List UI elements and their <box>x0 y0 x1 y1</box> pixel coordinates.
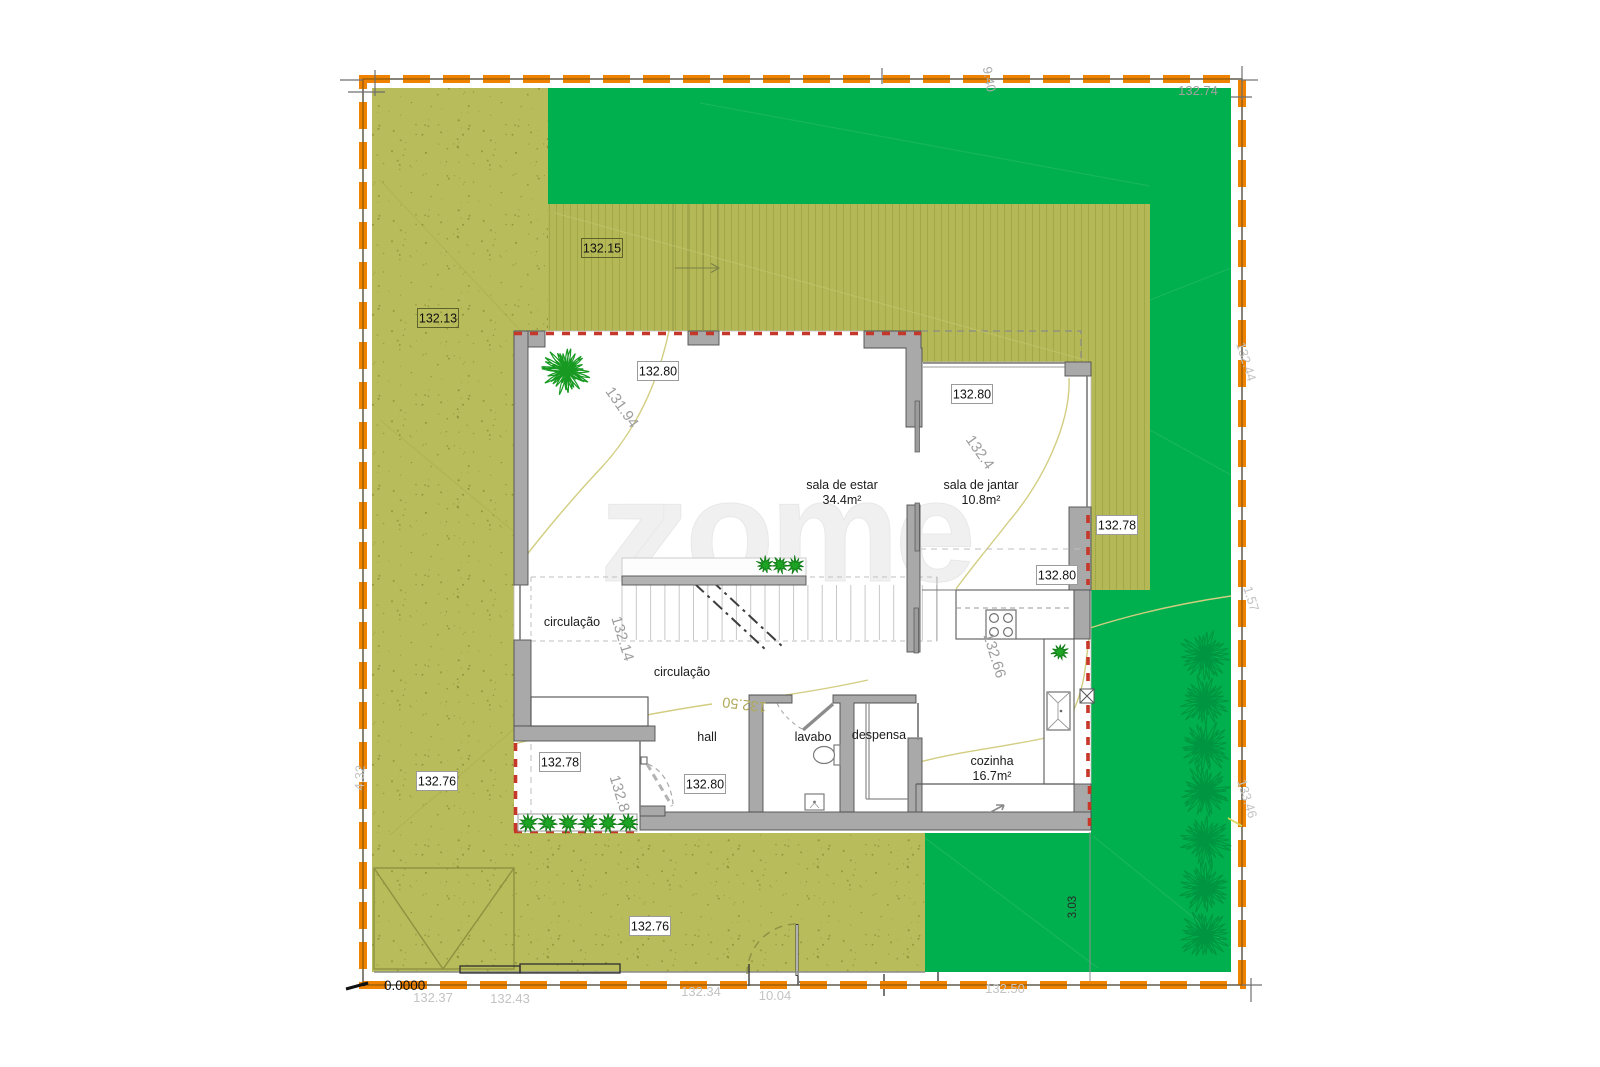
svg-text:132.80: 132.80 <box>953 388 991 402</box>
svg-text:132.78: 132.78 <box>541 756 579 770</box>
svg-text:cozinha: cozinha <box>970 754 1013 768</box>
svg-text:132.74: 132.74 <box>1178 83 1218 98</box>
svg-text:132.44: 132.44 <box>1233 340 1259 382</box>
svg-text:132.50: 132.50 <box>985 981 1025 996</box>
svg-text:4.32: 4.32 <box>351 765 367 791</box>
svg-text:hall: hall <box>697 730 716 744</box>
svg-text:132.80: 132.80 <box>686 778 724 792</box>
svg-text:132.76: 132.76 <box>418 775 456 789</box>
svg-text:circulação: circulação <box>654 665 710 679</box>
svg-text:despensa: despensa <box>852 728 906 742</box>
svg-text:10.8m²: 10.8m² <box>962 493 1001 507</box>
svg-text:sala de estar: sala de estar <box>806 478 878 492</box>
svg-text:34.4m²: 34.4m² <box>823 493 862 507</box>
svg-text:10.04: 10.04 <box>759 988 792 1003</box>
svg-text:sala de jantar: sala de jantar <box>943 478 1018 492</box>
svg-text:132.37: 132.37 <box>413 990 453 1005</box>
svg-text:132.13: 132.13 <box>419 312 457 326</box>
svg-text:lavabo: lavabo <box>795 730 832 744</box>
svg-text:132.34: 132.34 <box>681 984 721 999</box>
svg-text:132.43: 132.43 <box>490 991 530 1006</box>
svg-text:132.76: 132.76 <box>631 920 669 934</box>
svg-text:circulação: circulação <box>544 615 600 629</box>
svg-text:132.80: 132.80 <box>1038 569 1076 583</box>
svg-text:132.15: 132.15 <box>583 242 621 256</box>
svg-text:3.03: 3.03 <box>1067 896 1079 918</box>
svg-text:132.78: 132.78 <box>1098 519 1136 533</box>
svg-text:16.7m²: 16.7m² <box>973 769 1012 783</box>
svg-text:132.80: 132.80 <box>639 365 677 379</box>
